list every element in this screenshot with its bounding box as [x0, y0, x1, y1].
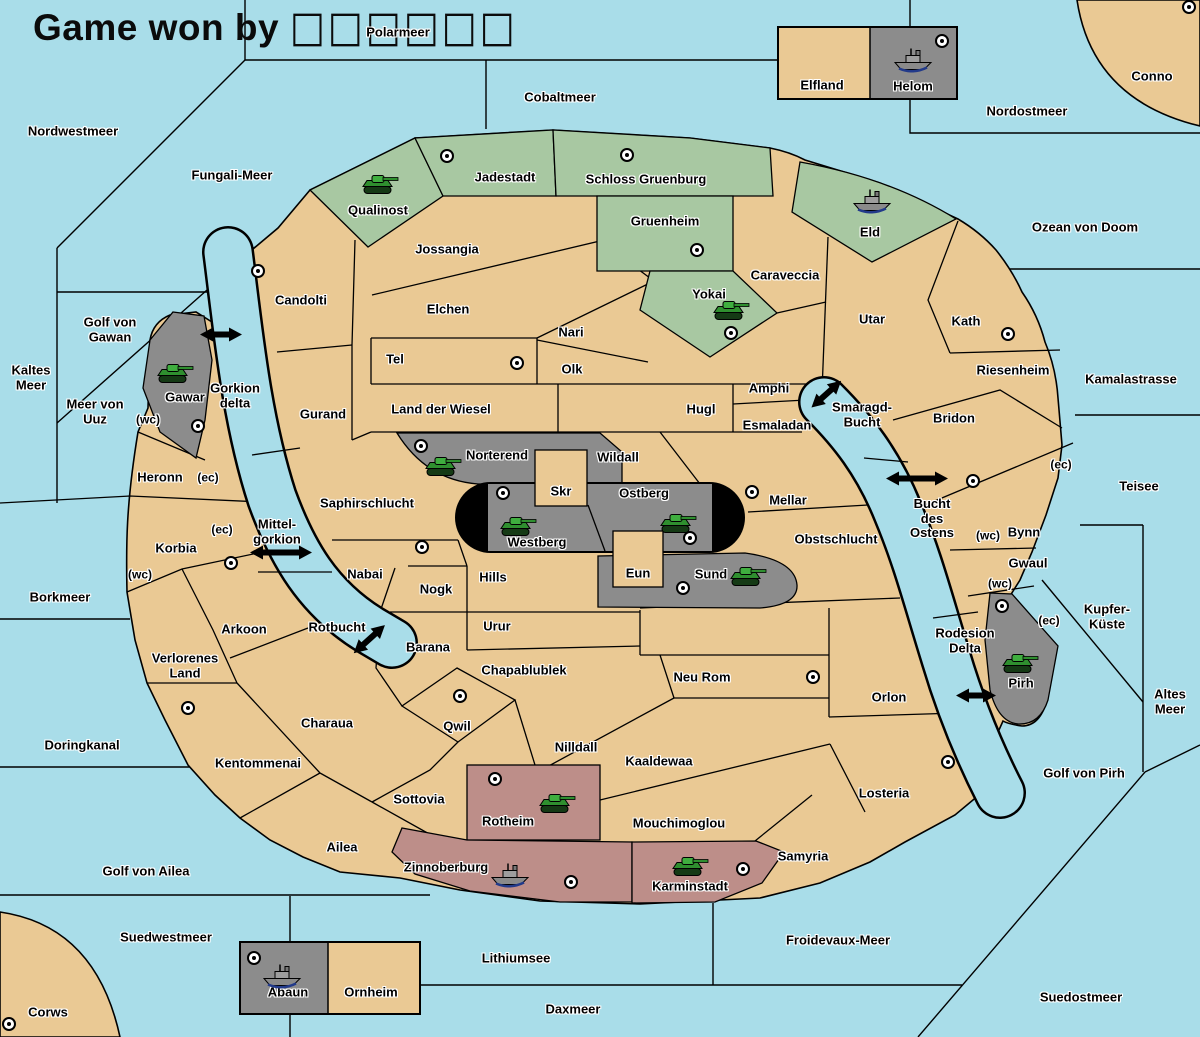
supply-center-gawar: [191, 419, 205, 433]
territory-label-hugl: Hugl: [687, 403, 716, 418]
supply-center-mellar: [745, 485, 759, 499]
supply-center-neu-rom: [806, 670, 820, 684]
territory-label-samyria: Samyria: [778, 850, 829, 865]
supply-center-norterend: [414, 439, 428, 453]
territory-label-gawar: Gawar: [165, 391, 205, 406]
supply-center-kath: [1001, 327, 1015, 341]
territory-label-kaaldewaa: Kaaldewaa: [625, 755, 692, 770]
territory-label-mouchimoglou: Mouchimoglou: [633, 817, 725, 832]
supply-center-abaun: [247, 951, 261, 965]
territory-label-chapablublek: Chapablublek: [481, 664, 566, 679]
sea-label-teisee: Teisee: [1119, 480, 1159, 495]
sea-label-gorkion-delta: Gorkion delta: [200, 381, 270, 410]
territory-label-nabai: Nabai: [347, 568, 382, 583]
territory-label-barana: Barana: [406, 641, 450, 656]
territory-label-sund: Sund: [695, 568, 728, 583]
territory-label-amphi: Amphi: [749, 382, 789, 397]
territory-label-arkoon: Arkoon: [221, 623, 267, 638]
army-icon-sund: [729, 564, 767, 593]
army-icon-westberg: [499, 514, 537, 543]
supply-center-yokai: [724, 326, 738, 340]
territory-label-caraveccia: Caraveccia: [751, 269, 820, 284]
territory-label-land-der-wiesel: Land der Wiesel: [391, 403, 491, 418]
sea-label-golf-von-pirh: Golf von Pirh: [1043, 767, 1125, 782]
territory-label-losteria: Losteria: [859, 787, 910, 802]
coast-marker-korbia-ec: (ec): [211, 523, 232, 536]
territory-label-ostberg: Ostberg: [619, 487, 669, 502]
supply-center-losteria: [941, 755, 955, 769]
territory-label-wildall: Wildall: [597, 451, 639, 466]
territory-label-obstschlucht: Obstschlucht: [794, 533, 877, 548]
sea-label-bucht-des-ostens: Bucht des Ostens: [903, 497, 961, 541]
supply-center-gruenheim: [690, 243, 704, 257]
supply-center-candolti: [251, 264, 265, 278]
supply-center-conno: [1182, 0, 1196, 14]
sea-label-borkmeer: Borkmeer: [30, 591, 91, 606]
coast-marker-korbia-wc: (wc): [128, 568, 152, 581]
fleet-icon-helom: [892, 47, 934, 78]
territory-label-elfland: Elfland: [800, 79, 843, 94]
territory-label-kath: Kath: [952, 315, 981, 330]
territory-label-rotheim: Rotheim: [482, 815, 534, 830]
sea-label-golf-von-ailea: Golf von Ailea: [103, 865, 190, 880]
territory-label-riesenheim: Riesenheim: [977, 364, 1050, 379]
territory-label-corws: Corws: [28, 1006, 68, 1021]
territory-label-norterend: Norterend: [466, 449, 528, 464]
territory-label-verlorenes-land: Verlorenes Land: [139, 651, 231, 680]
page-title: Game won by □□□□□□: [33, 6, 518, 49]
passage-arrow-rodesion-delta: [956, 687, 996, 710]
sea-label-cobaltmeer: Cobaltmeer: [524, 91, 596, 106]
territory-label-nogk: Nogk: [420, 583, 453, 598]
supply-center-schloss-gruenburg: [620, 148, 634, 162]
fleet-icon-abaun: [261, 963, 303, 994]
coast-marker-bynn-wc: (wc): [976, 529, 1000, 542]
territory-label-korbia: Korbia: [155, 542, 196, 557]
sea-label-nordwestmeer: Nordwestmeer: [28, 125, 118, 140]
supply-center-tel: [510, 356, 524, 370]
territory-label-sottovia: Sottovia: [393, 793, 444, 808]
territory-label-urur: Urur: [483, 620, 510, 635]
army-icon-ostberg: [659, 511, 697, 540]
sea-label-ozean-von-doom: Ozean von Doom: [1032, 221, 1138, 236]
sea-label-fungali-meer: Fungali-Meer: [192, 169, 273, 184]
territory-label-heronn: Heronn: [137, 471, 183, 486]
supply-center-nabai: [415, 540, 429, 554]
territory-label-zinnoberburg: Zinnoberburg: [404, 861, 489, 876]
sea-label-daxmeer: Daxmeer: [546, 1003, 601, 1018]
supply-center-qwil: [453, 689, 467, 703]
territory-label-jossangia: Jossangia: [415, 243, 479, 258]
sea-label-suedwestmeer: Suedwestmeer: [120, 931, 212, 946]
coast-marker-heronn-ec: (ec): [197, 471, 218, 484]
army-icon-karminstadt: [671, 854, 709, 883]
supply-center-pirh: [995, 599, 1009, 613]
supply-center-korbia: [224, 556, 238, 570]
army-icon-pirh: [1001, 651, 1039, 680]
supply-center-rotheim: [488, 772, 502, 786]
territory-label-gwaul: Gwaul: [1008, 557, 1047, 572]
fleet-icon-zinnoberburg: [489, 862, 531, 893]
territory-label-qwil: Qwil: [443, 720, 470, 735]
sea-label-mittel-gorkion: Mittel-gorkion: [237, 517, 317, 546]
territory-label-jadestadt: Jadestadt: [475, 171, 536, 186]
coast-marker-pirh-wc: (wc): [988, 577, 1012, 590]
supply-center-westberg: [496, 486, 510, 500]
territory-label-candolti: Candolti: [275, 294, 327, 309]
map-canvas: [0, 0, 1200, 1037]
supply-center-bridon: [966, 474, 980, 488]
territory-label-nari: Nari: [558, 326, 583, 341]
coast-marker-pirh-ec: (ec): [1038, 614, 1059, 627]
passage-arrow-mittel-gorkion: [250, 544, 312, 567]
sea-label-rotbucht: Rotbucht: [308, 621, 365, 636]
army-icon-yokai: [712, 298, 750, 327]
sea-label-polarmeer: Polarmeer: [366, 26, 430, 41]
sea-label-kamalastrasse: Kamalastrasse: [1085, 373, 1177, 388]
supply-center-karminstadt: [736, 862, 750, 876]
game-map: Game won by □□□□□□ Polarmeer Nordwestmee…: [0, 0, 1200, 1037]
territory-label-olk: Olk: [562, 363, 583, 378]
territory-label-gurand: Gurand: [300, 408, 346, 423]
sea-label-altes-meer: Altes Meer: [1143, 687, 1197, 716]
territory-label-conno: Conno: [1131, 70, 1172, 85]
territory-label-neu-rom: Neu Rom: [673, 671, 730, 686]
territory-label-elchen: Elchen: [427, 303, 470, 318]
territory-label-qualinost: Qualinost: [348, 204, 408, 219]
supply-center-corws: [2, 1017, 16, 1031]
sea-label-meer-von-uuz: Meer von Uuz: [64, 397, 126, 426]
territory-label-gruenheim: Gruenheim: [631, 215, 700, 230]
supply-center-helom: [935, 34, 949, 48]
army-icon-gawar: [156, 361, 194, 390]
territory-label-ailea: Ailea: [326, 841, 357, 856]
territory-label-charaua: Charaua: [301, 717, 353, 732]
territory-label-ornheim: Ornheim: [344, 986, 397, 1001]
passage-arrow-gorkion-delta: [200, 326, 242, 349]
supply-center-verlorenes-land: [181, 701, 195, 715]
supply-center-sund: [676, 581, 690, 595]
sea-label-nordostmeer: Nordostmeer: [987, 105, 1068, 120]
sea-label-froidevaux-meer: Froidevaux-Meer: [786, 934, 890, 949]
army-icon-qualinost: [361, 172, 399, 201]
sea-label-suedostmeer: Suedostmeer: [1040, 991, 1122, 1006]
island-conno: [1077, 0, 1200, 126]
sea-label-golf-von-gawan: Golf von Gawan: [70, 315, 150, 344]
sea-label-doringkanal: Doringkanal: [44, 739, 119, 754]
coast-marker-bynn-ec: (ec): [1050, 458, 1071, 471]
territory-label-hills: Hills: [479, 571, 506, 586]
army-icon-rotheim: [538, 791, 576, 820]
army-icon-norterend: [424, 454, 462, 483]
territory-label-bynn: Bynn: [1008, 526, 1041, 541]
fleet-icon-eld: [851, 188, 893, 219]
sea-label-kaltes-meer: Kaltes Meer: [1, 363, 61, 392]
coast-marker-gawar-wc: (wc): [136, 413, 160, 426]
sea-label-kupfer-kueste: Kupfer-Küste: [1070, 602, 1144, 631]
territory-label-utar: Utar: [859, 313, 885, 328]
territory-label-orlon: Orlon: [872, 691, 907, 706]
territory-label-esmaladan: Esmaladan: [743, 419, 812, 434]
territory-label-eld: Eld: [860, 226, 880, 241]
territory-label-nilldall: Nilldall: [555, 741, 598, 756]
sea-label-lithiumsee: Lithiumsee: [482, 952, 551, 967]
territory-label-tel: Tel: [386, 353, 404, 368]
territory-label-skr: Skr: [551, 485, 572, 500]
territory-label-schloss-gruenburg: Schloss Gruenburg: [586, 173, 707, 188]
territory-label-kentommenai: Kentommenai: [215, 757, 301, 772]
territory-label-eun: Eun: [626, 567, 651, 582]
territory-label-saphirschlucht: Saphirschlucht: [320, 497, 414, 512]
supply-center-zinnoberburg: [564, 875, 578, 889]
passage-arrow-bucht-des-ostens: [886, 470, 948, 493]
territory-label-helom: Helom: [893, 80, 933, 95]
territory-label-mellar: Mellar: [769, 494, 807, 509]
supply-center-jadestadt: [440, 149, 454, 163]
sea-label-rodesion-delta: Rodesion Delta: [924, 626, 1006, 655]
territory-label-bridon: Bridon: [933, 412, 975, 427]
title-text: Game won by: [33, 7, 290, 48]
